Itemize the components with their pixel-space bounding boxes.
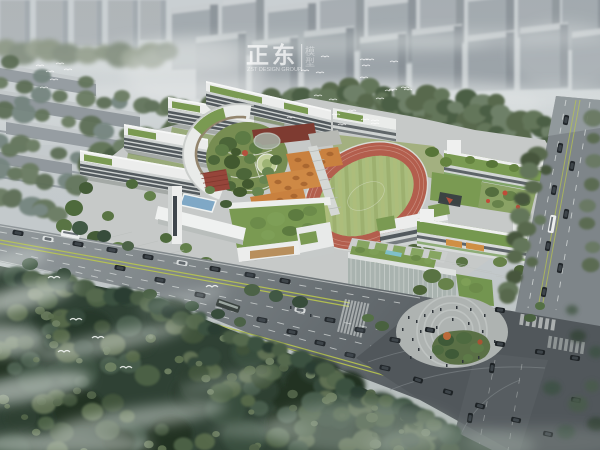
svg-text:正东: 正东: [246, 42, 298, 68]
svg-text:ZST DESIGN GROUP: ZST DESIGN GROUP: [247, 67, 302, 73]
svg-text:模: 模: [305, 46, 315, 58]
svg-text:型: 型: [305, 56, 315, 69]
